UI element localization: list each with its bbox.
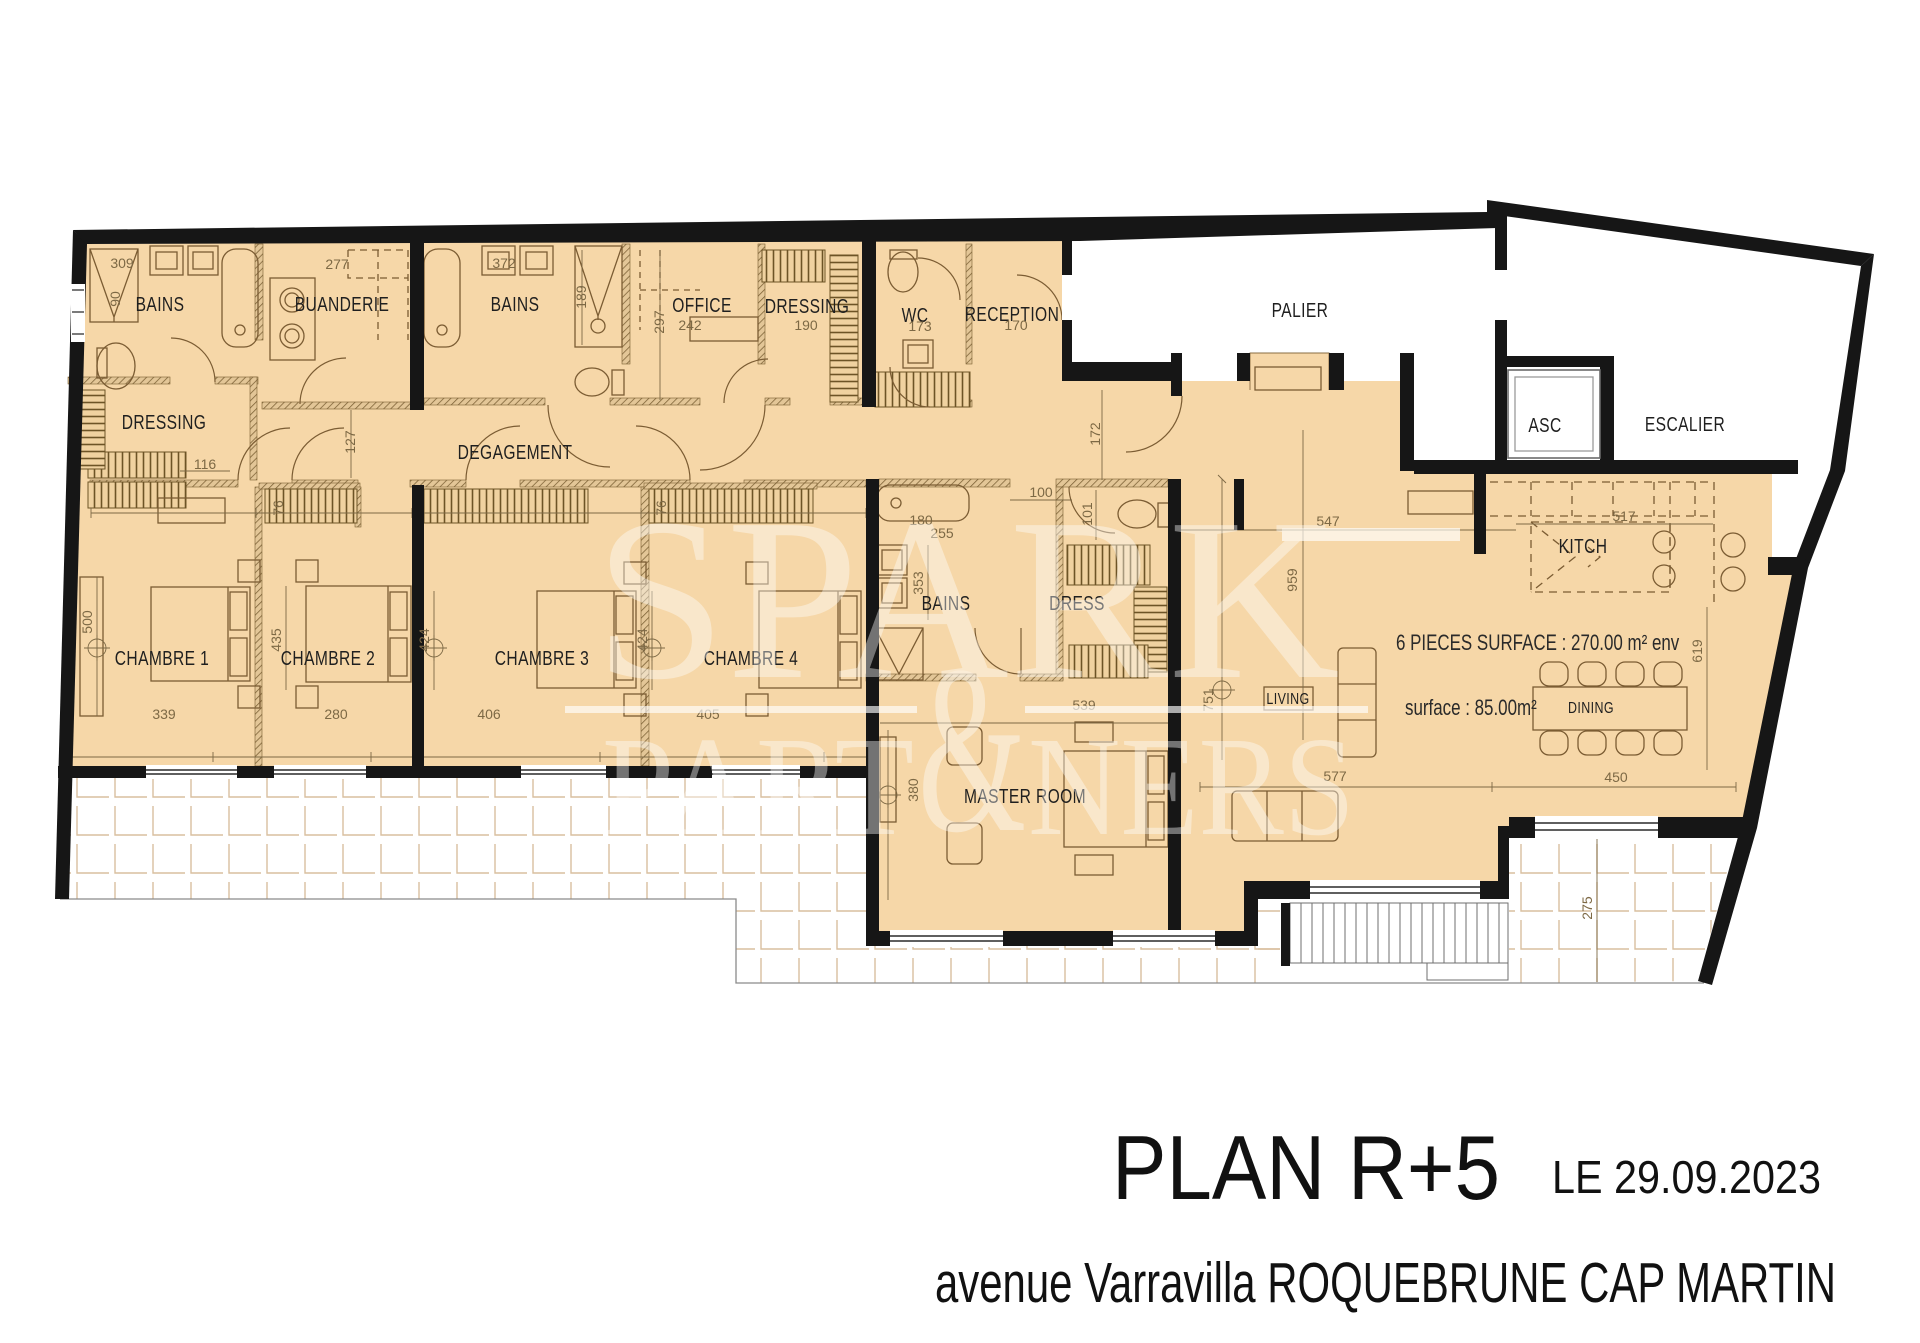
- svg-text:517: 517: [1612, 508, 1636, 524]
- svg-text:CHAMBRE 1: CHAMBRE 1: [115, 647, 209, 669]
- svg-text:173: 173: [908, 318, 932, 334]
- svg-text:280: 280: [324, 706, 348, 722]
- svg-text:BUANDERIE: BUANDERIE: [295, 293, 389, 315]
- svg-text:DEGAGEMENT: DEGAGEMENT: [458, 441, 573, 463]
- svg-text:190: 190: [794, 317, 818, 333]
- svg-text:CHAMBRE 3: CHAMBRE 3: [495, 647, 589, 669]
- svg-text:CHAMBRE 2: CHAMBRE 2: [281, 647, 375, 669]
- svg-text:189: 189: [573, 285, 589, 309]
- svg-text:309: 309: [110, 255, 134, 271]
- svg-text:76: 76: [270, 500, 286, 516]
- svg-text:277: 277: [325, 256, 349, 272]
- svg-text:&: &: [918, 617, 1026, 882]
- svg-text:PART: PART: [602, 707, 914, 865]
- svg-text:372: 372: [492, 255, 516, 271]
- svg-text:619: 619: [1689, 639, 1705, 663]
- svg-text:KITCH: KITCH: [1559, 535, 1608, 557]
- svg-text:297: 297: [651, 310, 667, 334]
- svg-text:surface : 85.00m²: surface : 85.00m²: [1405, 696, 1537, 721]
- svg-text:DINING: DINING: [1568, 700, 1614, 718]
- svg-text:172: 172: [1087, 422, 1103, 446]
- svg-text:OFFICE: OFFICE: [672, 294, 731, 316]
- svg-text:avenue Varravilla ROQUEBRUNE C: avenue Varravilla ROQUEBRUNE CAP MARTIN: [935, 1251, 1836, 1315]
- svg-text:PLAN R+5: PLAN R+5: [1112, 1118, 1500, 1219]
- svg-text:116: 116: [194, 456, 217, 472]
- svg-text:BAINS: BAINS: [491, 293, 540, 315]
- svg-text:275: 275: [1579, 896, 1595, 920]
- svg-text:PALIER: PALIER: [1272, 299, 1329, 321]
- svg-text:435: 435: [268, 628, 284, 652]
- svg-text:339: 339: [152, 706, 176, 722]
- svg-text:90: 90: [107, 291, 123, 307]
- svg-text:424: 424: [416, 628, 432, 652]
- svg-text:LE 29.09.2023: LE 29.09.2023: [1552, 1151, 1821, 1203]
- svg-text:ESCALIER: ESCALIER: [1645, 413, 1725, 435]
- svg-text:DRESSING: DRESSING: [122, 411, 207, 433]
- svg-text:6 PIECES SURFACE : 270.00 m² e: 6 PIECES SURFACE : 270.00 m² env: [1396, 631, 1679, 656]
- svg-text:127: 127: [342, 430, 358, 454]
- svg-text:BAINS: BAINS: [136, 293, 185, 315]
- svg-text:450: 450: [1604, 769, 1628, 785]
- svg-text:ASC: ASC: [1528, 414, 1561, 436]
- svg-text:170: 170: [1004, 317, 1028, 333]
- svg-text:NERS: NERS: [1028, 707, 1355, 865]
- svg-text:406: 406: [477, 706, 501, 722]
- svg-text:242: 242: [678, 317, 702, 333]
- svg-text:500: 500: [79, 610, 95, 634]
- svg-text:DRESSING: DRESSING: [765, 295, 850, 317]
